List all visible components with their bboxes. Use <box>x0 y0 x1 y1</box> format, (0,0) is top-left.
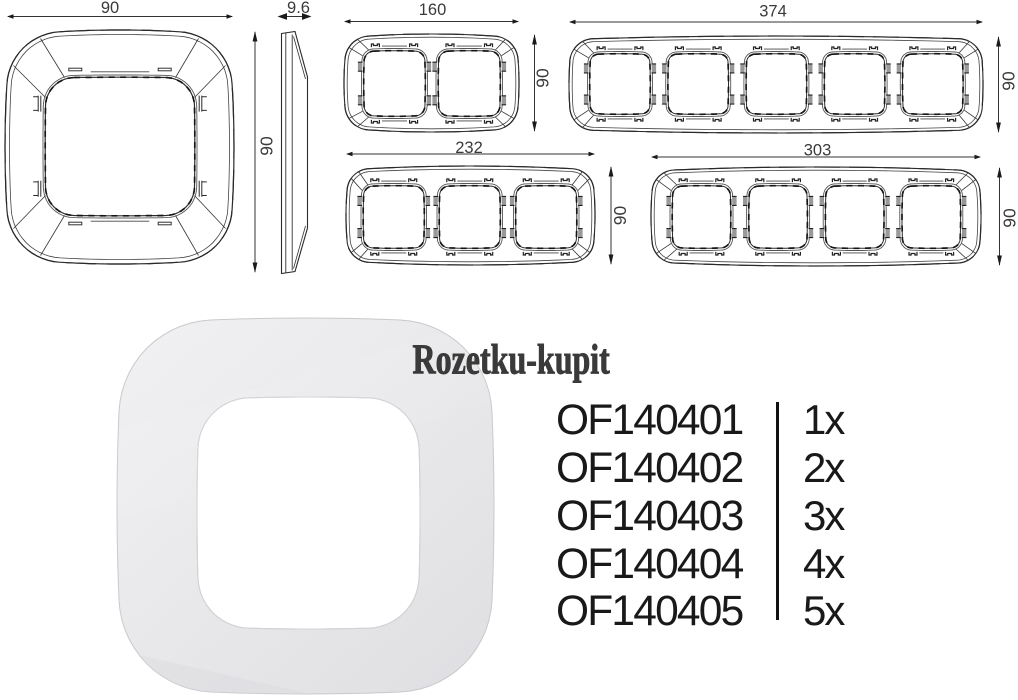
svg-text:Rozetku-kupit: Rozetku-kupit <box>413 338 611 384</box>
svg-text:9.6: 9.6 <box>287 0 310 17</box>
svg-text:90: 90 <box>610 206 630 226</box>
svg-text:90: 90 <box>101 0 119 17</box>
svg-text:90: 90 <box>533 68 553 88</box>
svg-text:160: 160 <box>419 1 447 19</box>
svg-text:90: 90 <box>1000 208 1018 228</box>
svg-text:90: 90 <box>999 71 1018 91</box>
svg-text:OF140403: OF140403 <box>556 493 743 540</box>
svg-text:2x: 2x <box>803 444 845 491</box>
svg-text:3x: 3x <box>803 492 845 539</box>
svg-text:90: 90 <box>257 136 277 156</box>
svg-text:4x: 4x <box>803 540 845 587</box>
svg-text:374: 374 <box>759 3 787 21</box>
svg-text:303: 303 <box>804 142 832 160</box>
svg-text:5x: 5x <box>803 587 845 634</box>
svg-text:OF140404: OF140404 <box>556 541 744 588</box>
svg-text:OF140402: OF140402 <box>556 445 743 492</box>
svg-text:1x: 1x <box>803 396 845 443</box>
svg-text:OF140401: OF140401 <box>556 397 743 444</box>
svg-text:232: 232 <box>455 139 483 157</box>
svg-text:OF140405: OF140405 <box>556 588 743 635</box>
